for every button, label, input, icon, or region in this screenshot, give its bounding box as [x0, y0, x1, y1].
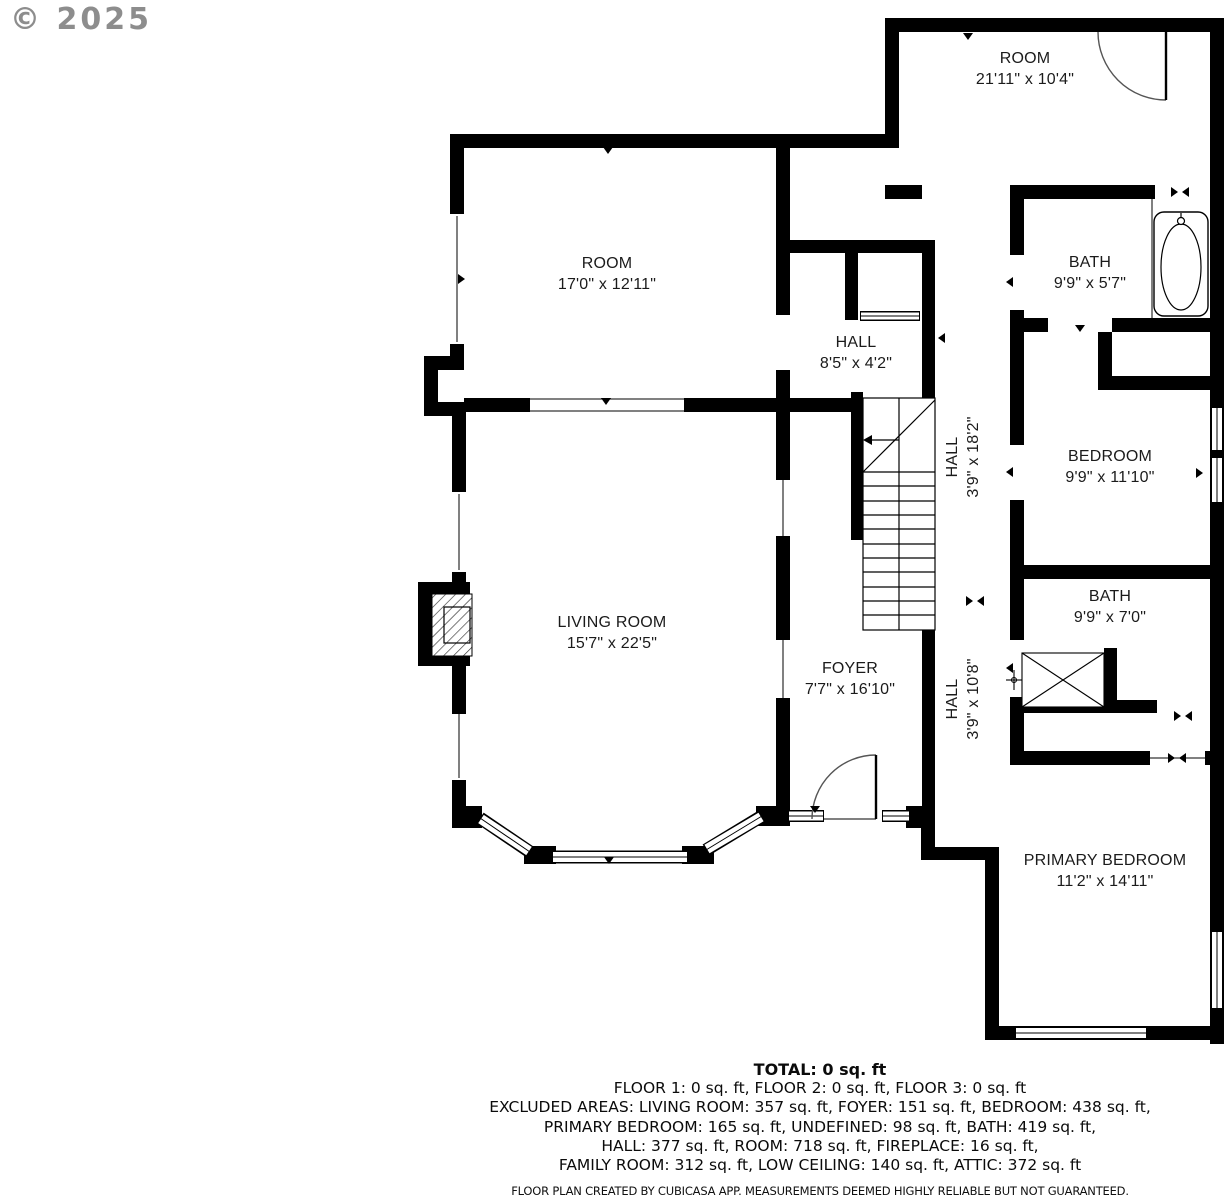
room-dims: 11'2" x 14'11"	[965, 871, 1224, 892]
summary-excluded-line-2: PRIMARY BEDROOM: 165 sq. ft, UNDEFINED: …	[412, 1118, 1224, 1137]
floorplan-page: © 2025 ROOM 21'11" x 10'4" ROOM 17'0" x …	[0, 0, 1224, 1200]
room-name: LIVING ROOM	[492, 612, 732, 633]
tick-bath2-door	[1006, 663, 1013, 673]
fireplace	[418, 582, 472, 666]
room-label-hall-top: HALL 8'5" x 4'2"	[776, 332, 936, 374]
room-name: BATH	[1010, 252, 1170, 273]
marker-bath2-opening	[1174, 711, 1192, 721]
marker-room-opening-top	[1171, 187, 1189, 197]
room-dims: 9'9" x 7'0"	[1010, 607, 1210, 628]
door-entry-foyer	[812, 755, 876, 819]
room-label-hall-vertical-upper: HALL 3'9" x 18'2"	[942, 382, 984, 532]
room-name: HALL	[942, 624, 963, 774]
window-bay-left	[480, 818, 530, 852]
room-dims: 15'7" x 22'5"	[492, 633, 732, 654]
room-name: ROOM	[487, 253, 727, 274]
room-dims: 9'9" x 11'10"	[1000, 467, 1220, 488]
area-summary: TOTAL: 0 sq. ft FLOOR 1: 0 sq. ft, FLOOR…	[412, 1060, 1224, 1175]
tick-bath-opening	[1075, 325, 1085, 332]
room-dims: 21'11" x 10'4"	[905, 69, 1145, 90]
room-label-bath-top: BATH 9'9" x 5'7"	[1010, 252, 1170, 294]
room-dims: 7'7" x 16'10"	[750, 679, 950, 700]
tick-living-opening	[601, 398, 611, 405]
summary-floors: FLOOR 1: 0 sq. ft, FLOOR 2: 0 sq. ft, FL…	[412, 1079, 1224, 1098]
staircase	[863, 398, 935, 630]
room-label-hall-vertical-lower: HALL 3'9" x 10'8"	[942, 624, 984, 774]
room-label-room-top-right: ROOM 21'11" x 10'4"	[905, 48, 1145, 90]
room-dims: 17'0" x 12'11"	[487, 274, 727, 295]
room-dims: 9'9" x 5'7"	[1010, 273, 1170, 294]
room-name: ROOM	[905, 48, 1145, 69]
copyright-watermark: © 2025	[10, 2, 152, 37]
room-name: BATH	[1010, 586, 1210, 607]
tick-room-top	[603, 147, 613, 154]
room-label-bath-lower: BATH 9'9" x 7'0"	[1010, 586, 1210, 628]
disclaimer-footer: FLOOR PLAN CREATED BY CUBICASA APP. MEAS…	[412, 1184, 1224, 1198]
summary-excluded-line-4: FAMILY ROOM: 312 sq. ft, LOW CEILING: 14…	[412, 1156, 1224, 1175]
room-dims: 3'9" x 18'2"	[963, 382, 984, 532]
room-label-foyer: FOYER 7'7" x 16'10"	[750, 658, 950, 700]
summary-excluded-line-3: HALL: 377 sq. ft, ROOM: 718 sq. ft, FIRE…	[412, 1137, 1224, 1156]
window-bay-right	[706, 816, 762, 850]
room-name: PRIMARY BEDROOM	[965, 850, 1224, 871]
tick-top-wall	[963, 33, 973, 40]
room-label-living-room: LIVING ROOM 15'7" x 22'5"	[492, 612, 732, 654]
room-label-room-upper-left: ROOM 17'0" x 12'11"	[487, 253, 727, 295]
room-dims: 8'5" x 4'2"	[776, 353, 936, 374]
room-name: HALL	[776, 332, 936, 353]
shower-faucet-icon	[1006, 670, 1022, 690]
room-dims: 3'9" x 10'8"	[963, 624, 984, 774]
room-name: FOYER	[750, 658, 950, 679]
marker-hall-junction	[966, 596, 984, 606]
summary-excluded-line-1: EXCLUDED AREAS: LIVING ROOM: 357 sq. ft,…	[412, 1098, 1224, 1117]
summary-total: TOTAL: 0 sq. ft	[412, 1060, 1224, 1079]
room-label-bedroom: BEDROOM 9'9" x 11'10"	[1000, 446, 1220, 488]
room-name: BEDROOM	[1000, 446, 1220, 467]
room-label-primary-bedroom: PRIMARY BEDROOM 11'2" x 14'11"	[965, 850, 1224, 892]
room-name: HALL	[942, 382, 963, 532]
